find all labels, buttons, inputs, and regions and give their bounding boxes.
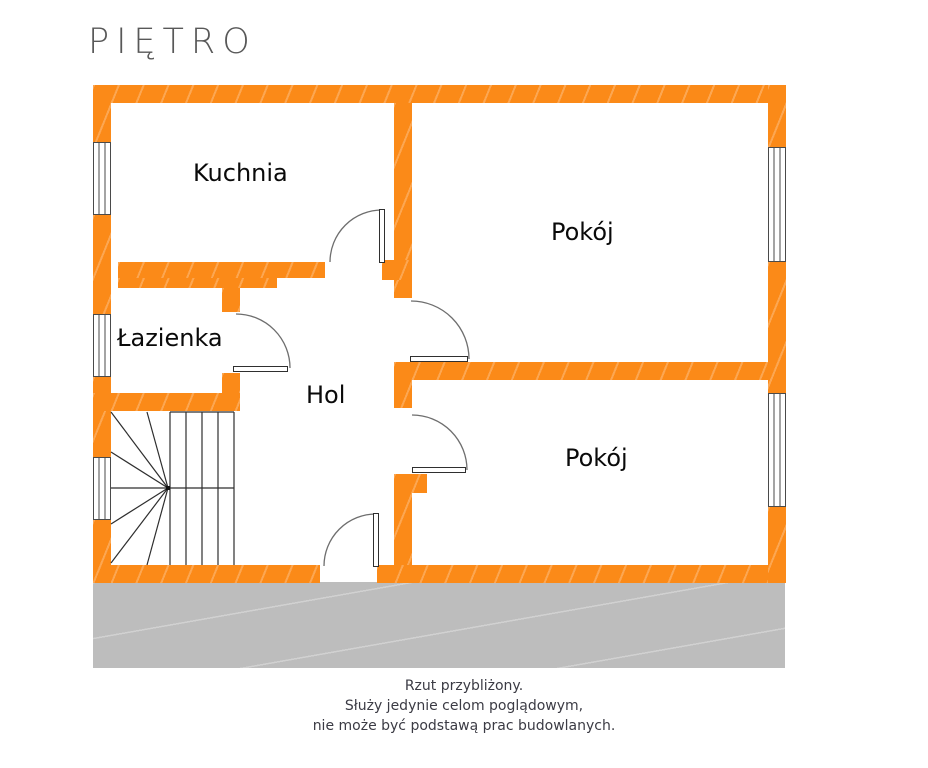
door-leaf-room-bottom xyxy=(412,467,466,473)
disclaimer: Rzut przybliżony. Służy jedynie celom po… xyxy=(0,676,928,736)
disclaimer-line-2: Służy jedynie celom poglądowym, xyxy=(0,696,928,716)
room-label-kitchen: Kuchnia xyxy=(193,159,288,187)
window-staircase xyxy=(93,457,111,520)
wall-center-kitchen-jamb xyxy=(382,260,412,280)
wall-right-segment-2 xyxy=(768,262,786,393)
wall-top xyxy=(93,85,786,103)
door-arc-room-top xyxy=(411,301,469,359)
window-room-bottom xyxy=(768,393,786,507)
page-title: PIĘTRO xyxy=(88,22,257,62)
staircase xyxy=(111,412,234,565)
window-pane xyxy=(774,393,781,507)
ground-band xyxy=(93,582,785,668)
stair-winder-line xyxy=(147,412,168,488)
room-label-room-top: Pokój xyxy=(551,218,614,246)
disclaimer-line-3: nie może być podstawą prac budowlanych. xyxy=(0,716,928,736)
door-leaf-bathroom xyxy=(233,366,288,372)
wall-bottom-left xyxy=(93,565,320,583)
wall-right-segment-1 xyxy=(768,85,786,147)
wall-left-segment-4 xyxy=(93,520,111,583)
wall-room-divider xyxy=(394,362,768,380)
window-pane xyxy=(99,142,106,215)
door-leaf-entry xyxy=(373,513,379,567)
door-arc-kitchen xyxy=(330,210,382,262)
disclaimer-line-1: Rzut przybliżony. xyxy=(0,676,928,696)
wall-kitchen-bottom-a xyxy=(118,262,325,278)
wall-right-segment-3 xyxy=(768,507,786,583)
door-arc-bathroom xyxy=(236,314,290,368)
window-bathroom xyxy=(93,314,111,377)
room-label-room-bottom: Pokój xyxy=(565,444,628,472)
window-pane xyxy=(99,314,106,377)
wall-kitchen-bottom-b xyxy=(118,278,277,288)
door-arc-room-bottom xyxy=(412,415,467,470)
wall-bathroom-bottom xyxy=(93,393,240,411)
door-leaf-room-top xyxy=(410,356,468,362)
floor-plan: PIĘTRO xyxy=(0,0,928,768)
window-pane xyxy=(99,457,106,520)
stair-center-point xyxy=(166,486,170,490)
door-arc-entry xyxy=(324,514,376,566)
stair-winder-line xyxy=(111,488,168,524)
room-label-hall: Hol xyxy=(306,381,345,409)
door-leaf-kitchen xyxy=(379,209,385,263)
stair-winder-line xyxy=(111,452,168,488)
wall-left-segment-3 xyxy=(93,377,111,457)
wall-left-segment-2 xyxy=(93,215,111,314)
stair-winder-line xyxy=(147,488,168,565)
wall-bathroom-right-stub xyxy=(222,288,240,312)
room-label-bathroom: Łazienka xyxy=(117,324,223,352)
wall-left-segment-1 xyxy=(93,85,111,142)
stair-winder-line xyxy=(111,488,168,563)
window-room-top xyxy=(768,147,786,262)
wall-bottom-right xyxy=(377,565,786,583)
stair-winder-line xyxy=(111,412,168,488)
window-pane xyxy=(774,147,781,262)
window-kitchen xyxy=(93,142,111,215)
wall-center-segment-3 xyxy=(394,474,412,565)
